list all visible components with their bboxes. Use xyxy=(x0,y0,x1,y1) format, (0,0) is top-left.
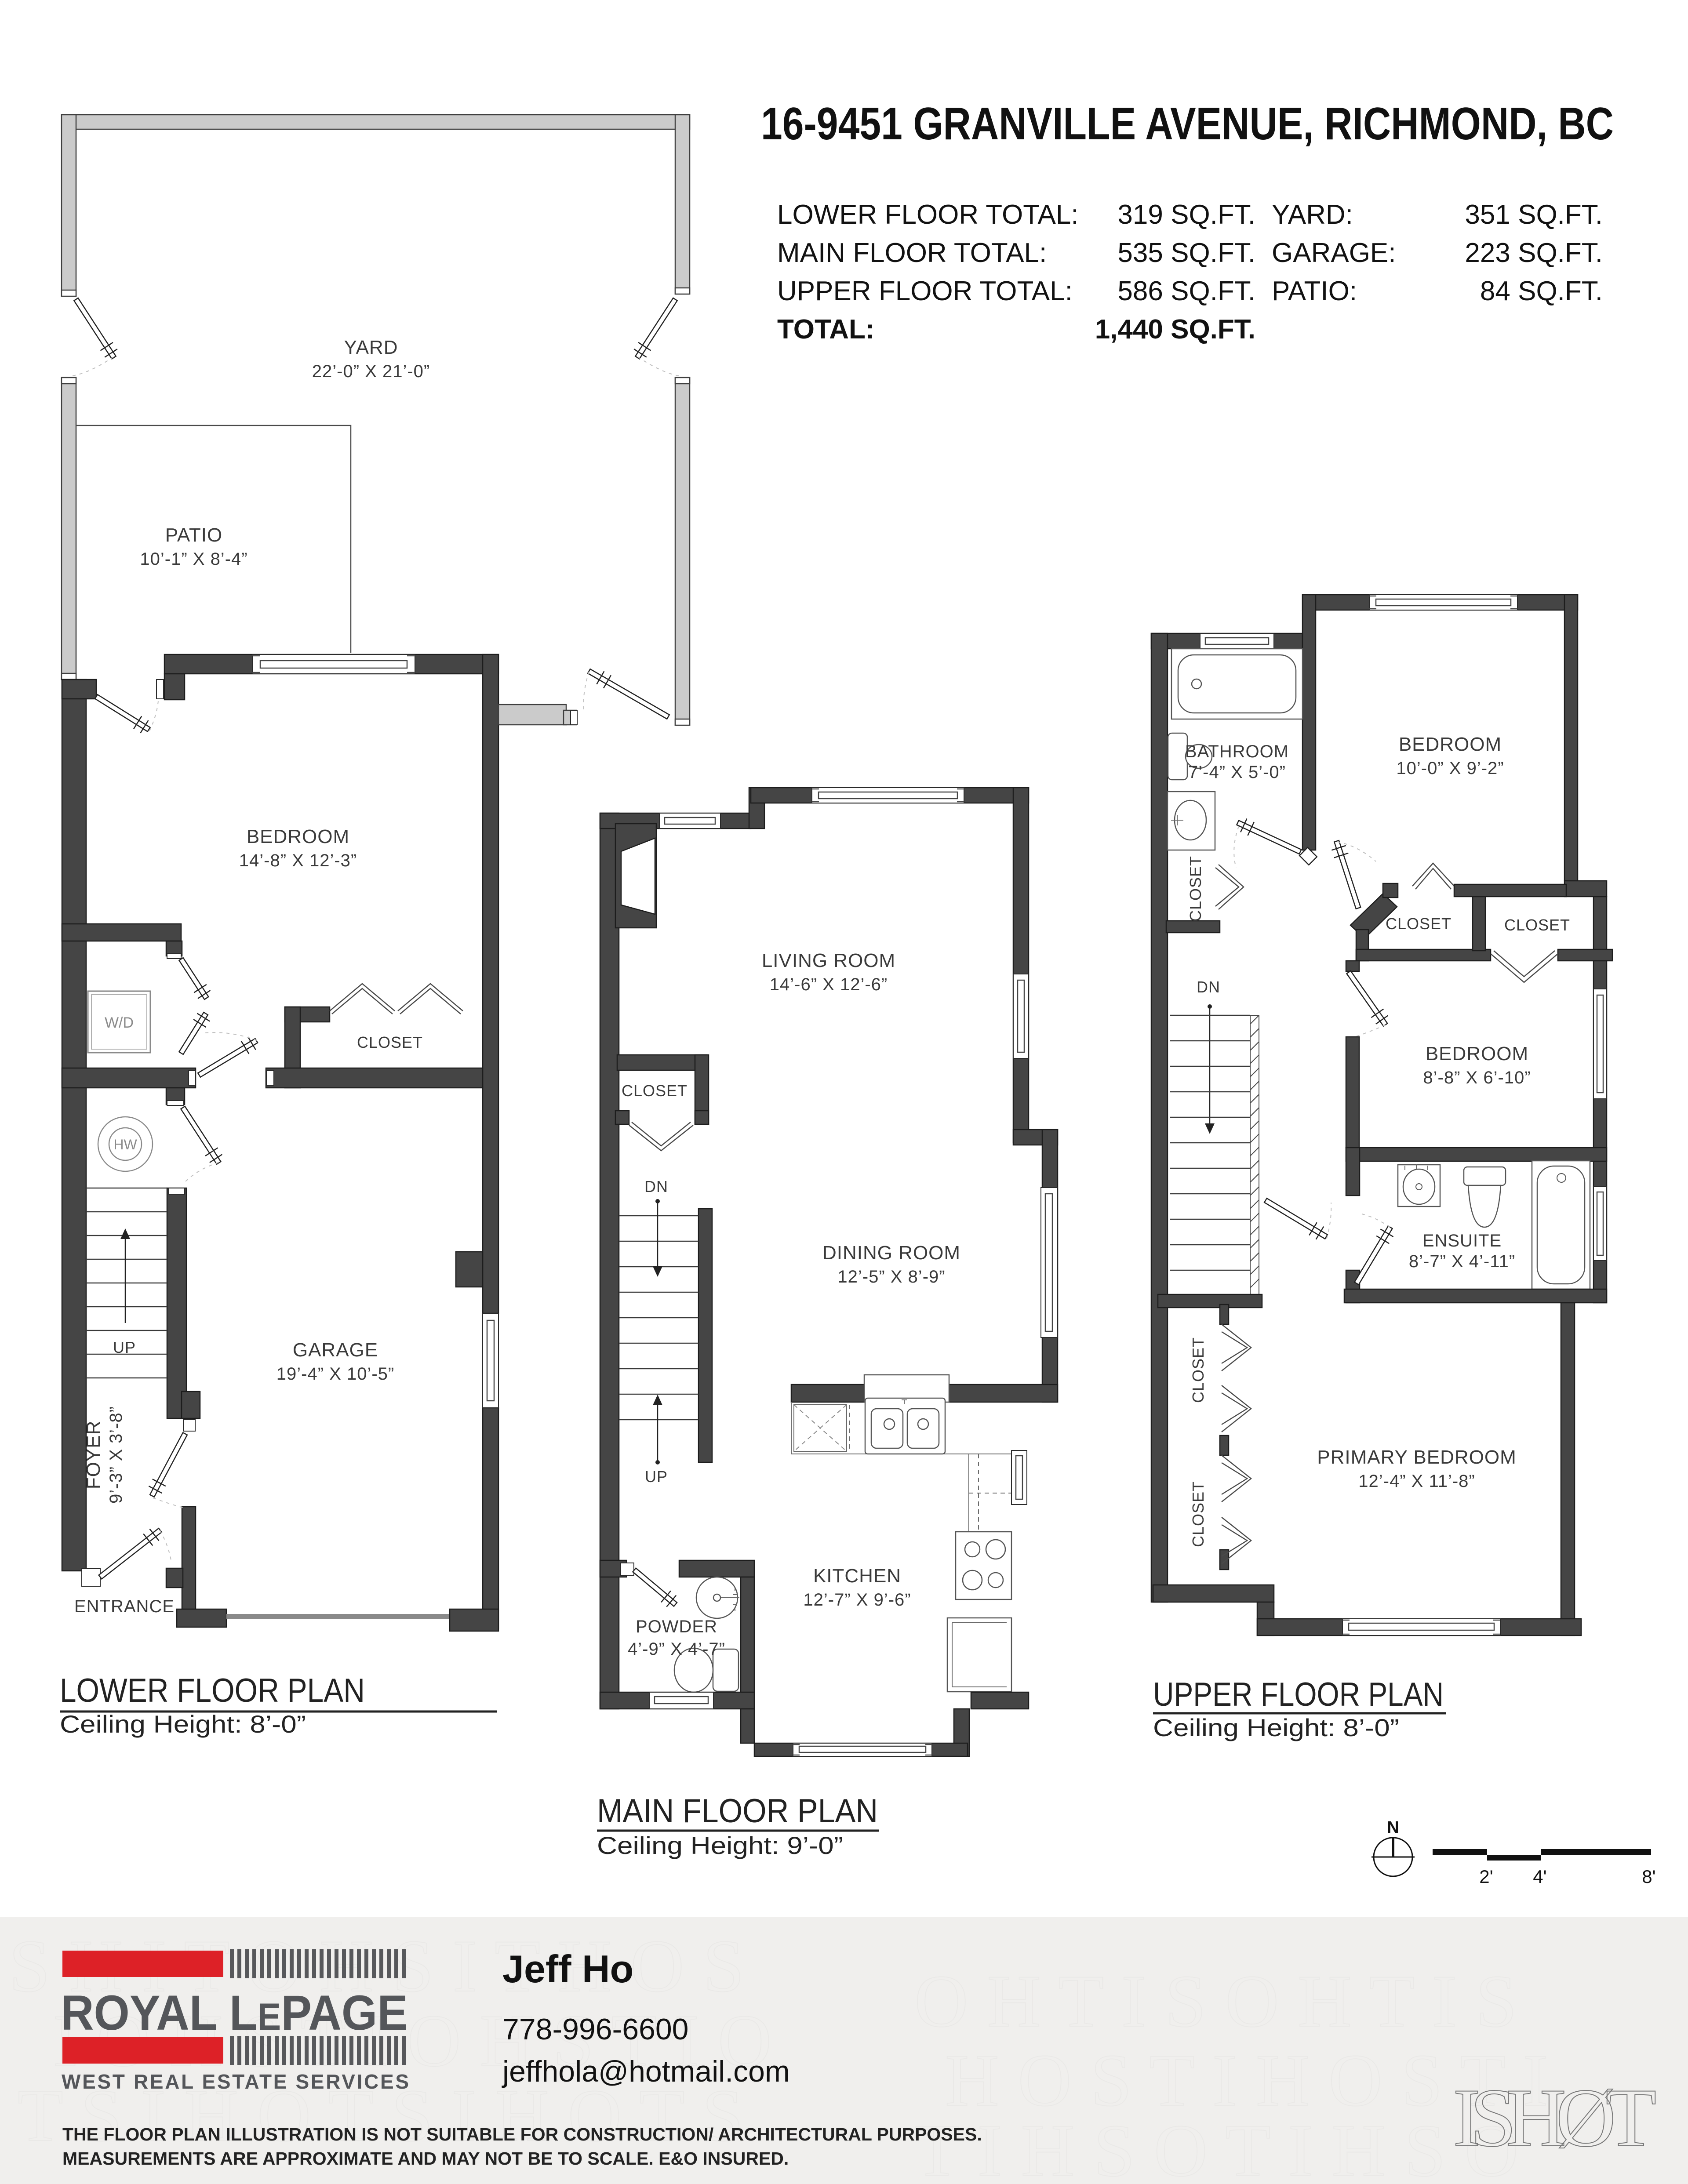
svg-text:PATIO: PATIO xyxy=(165,524,223,546)
svg-text:THE FLOOR PLAN ILLUSTRATION IS: THE FLOOR PLAN ILLUSTRATION IS NOT SUITA… xyxy=(62,2124,982,2144)
svg-text:BEDROOM: BEDROOM xyxy=(247,826,349,847)
svg-text:DN: DN xyxy=(644,1177,668,1196)
svg-text:O H T I S O H T I S: O H T I S O H T I S xyxy=(914,1960,1517,2042)
svg-text:LIVING ROOM: LIVING ROOM xyxy=(762,950,895,971)
svg-text:N: N xyxy=(1387,1818,1399,1837)
svg-text:BEDROOM: BEDROOM xyxy=(1399,734,1502,755)
svg-text:LOWER FLOOR TOTAL:: LOWER FLOOR TOTAL: xyxy=(777,200,1079,230)
svg-text:UPPER FLOOR TOTAL:: UPPER FLOOR TOTAL: xyxy=(777,276,1073,306)
svg-text:14’-8” X 12’-3”: 14’-8” X 12’-3” xyxy=(239,851,357,870)
svg-text:7’-4” X 5’-0”: 7’-4” X 5’-0” xyxy=(1188,763,1286,782)
svg-text:LOWER FLOOR PLAN: LOWER FLOOR PLAN xyxy=(60,1672,365,1709)
svg-text:Ceiling Height: 9’-0”: Ceiling Height: 9’-0” xyxy=(597,1832,843,1859)
svg-text:MAIN FLOOR PLAN: MAIN FLOOR PLAN xyxy=(597,1792,878,1830)
svg-text:CLOSET: CLOSET xyxy=(357,1033,423,1051)
svg-text:UP: UP xyxy=(645,1468,668,1486)
svg-text:MEASUREMENTS ARE APPROXIMATE A: MEASUREMENTS ARE APPROXIMATE AND MAY NOT… xyxy=(62,2148,789,2169)
svg-text:YARD: YARD xyxy=(344,337,398,358)
svg-text:10’-0” X 9’-2”: 10’-0” X 9’-2” xyxy=(1396,759,1504,778)
svg-text:586 SQ.FT.: 586 SQ.FT. xyxy=(1117,276,1255,306)
svg-text:CLOSET: CLOSET xyxy=(1504,916,1570,934)
svg-text:Ceiling Height: 8’-0”: Ceiling Height: 8’-0” xyxy=(60,1710,306,1738)
svg-text:1,440 SQ.FT.: 1,440 SQ.FT. xyxy=(1095,314,1255,345)
svg-text:W/D: W/D xyxy=(105,1014,134,1031)
svg-text:535 SQ.FT.: 535 SQ.FT. xyxy=(1117,238,1255,268)
svg-text:MAIN FLOOR TOTAL:: MAIN FLOOR TOTAL: xyxy=(777,238,1047,268)
svg-text:22’-0” X 21’-0”: 22’-0” X 21’-0” xyxy=(312,362,430,381)
svg-text:14’-6” X 12’-6”: 14’-6” X 12’-6” xyxy=(770,975,888,994)
svg-text:GARAGE:: GARAGE: xyxy=(1272,238,1396,268)
svg-text:UP: UP xyxy=(113,1338,136,1356)
svg-text:12’-4” X 11’-8”: 12’-4” X 11’-8” xyxy=(1358,1472,1475,1491)
svg-text:CLOSET: CLOSET xyxy=(1189,1337,1207,1403)
svg-text:4’-9” X 4’-7”: 4’-9” X 4’-7” xyxy=(628,1639,725,1659)
svg-text:351 SQ.FT.: 351 SQ.FT. xyxy=(1465,200,1603,230)
svg-text:8': 8' xyxy=(1642,1866,1655,1887)
svg-text:jeffhola@hotmail.com: jeffhola@hotmail.com xyxy=(502,2055,790,2088)
svg-text:POWDER: POWDER xyxy=(636,1617,717,1636)
svg-text:223 SQ.FT.: 223 SQ.FT. xyxy=(1465,238,1603,268)
svg-text:319 SQ.FT.: 319 SQ.FT. xyxy=(1117,200,1255,230)
svg-text:12’-5” X 8’-9”: 12’-5” X 8’-9” xyxy=(837,1267,945,1286)
svg-text:Jeff Ho: Jeff Ho xyxy=(502,1947,633,1991)
svg-text:CLOSET: CLOSET xyxy=(1189,1481,1207,1547)
svg-text:DINING ROOM: DINING ROOM xyxy=(822,1242,960,1264)
svg-text:YARD:: YARD: xyxy=(1272,200,1353,230)
svg-text:12’-7” X 9’-6”: 12’-7” X 9’-6” xyxy=(803,1590,911,1610)
svg-text:2': 2' xyxy=(1479,1866,1493,1887)
svg-text:ROYAL LEPAGE: ROYAL LEPAGE xyxy=(61,1985,408,2040)
svg-text:ENSUITE: ENSUITE xyxy=(1422,1231,1502,1250)
svg-text:GARAGE: GARAGE xyxy=(293,1339,378,1361)
svg-text:KITCHEN: KITCHEN xyxy=(813,1565,901,1587)
svg-text:10’-1” X 8’-4”: 10’-1” X 8’-4” xyxy=(140,549,247,569)
svg-text:CLOSET: CLOSET xyxy=(1186,856,1204,922)
svg-text:UPPER FLOOR PLAN: UPPER FLOOR PLAN xyxy=(1153,1676,1444,1713)
svg-text:DN: DN xyxy=(1197,978,1220,996)
svg-text:HW: HW xyxy=(113,1137,137,1152)
svg-text:Ceiling Height: 8’-0”: Ceiling Height: 8’-0” xyxy=(1153,1714,1399,1741)
svg-text:BATHROOM: BATHROOM xyxy=(1185,742,1289,761)
svg-text:TOTAL:: TOTAL: xyxy=(777,314,875,345)
svg-text:8’-8” X 6’-10”: 8’-8” X 6’-10” xyxy=(1423,1068,1531,1087)
svg-text:CLOSET: CLOSET xyxy=(1386,915,1452,933)
svg-text:19’-4” X 10’-5”: 19’-4” X 10’-5” xyxy=(276,1364,394,1384)
svg-text:PRIMARY BEDROOM: PRIMARY BEDROOM xyxy=(1317,1446,1516,1468)
svg-text:CLOSET: CLOSET xyxy=(622,1082,688,1100)
svg-text:FOYER: FOYER xyxy=(83,1421,104,1490)
svg-text:ENTRANCE: ENTRANCE xyxy=(74,1597,175,1616)
svg-text:778-996-6600: 778-996-6600 xyxy=(502,2013,688,2046)
svg-text:BEDROOM: BEDROOM xyxy=(1426,1043,1528,1065)
svg-text:WEST REAL ESTATE SERVICES: WEST REAL ESTATE SERVICES xyxy=(62,2070,409,2093)
svg-text:T I H S O T I H S O: T I H S O T I H S O xyxy=(914,2109,1518,2184)
svg-text:ISHØT: ISHØT xyxy=(1453,2072,1655,2164)
svg-text:4': 4' xyxy=(1533,1866,1546,1887)
svg-text:PATIO:: PATIO: xyxy=(1272,276,1357,306)
svg-text:8’-7” X 4’-11”: 8’-7” X 4’-11” xyxy=(1409,1252,1515,1271)
svg-text:16-9451 GRANVILLE AVENUE, RICH: 16-9451 GRANVILLE AVENUE, RICHMOND, BC xyxy=(761,98,1614,149)
svg-text:9’-3” X 3’-8”: 9’-3” X 3’-8” xyxy=(106,1406,126,1504)
svg-text:84 SQ.FT.: 84 SQ.FT. xyxy=(1480,276,1603,306)
